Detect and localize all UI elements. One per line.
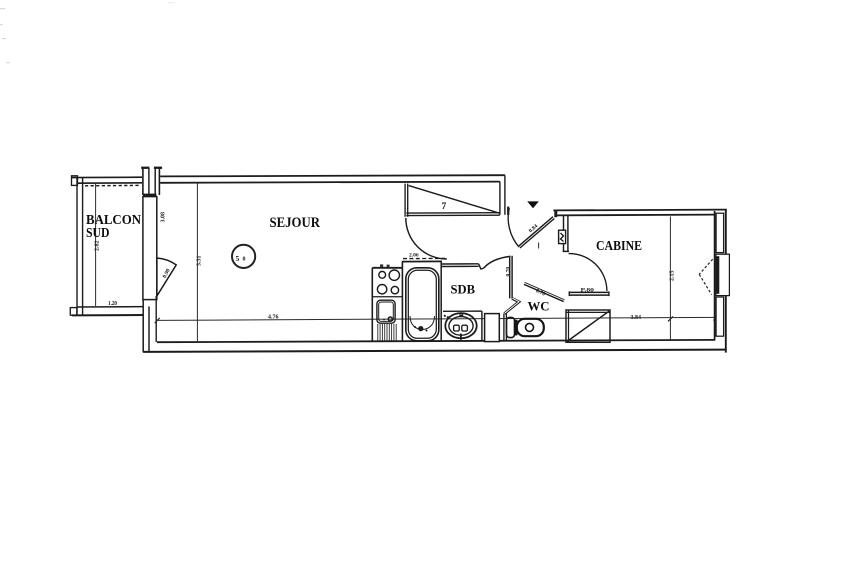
svg-text:5: 5 [236, 254, 240, 263]
svg-text:3.84: 3.84 [631, 315, 642, 321]
svg-text:SDB: SDB [451, 282, 476, 297]
svg-text:7: 7 [442, 202, 447, 212]
svg-text:2.15: 2.15 [670, 271, 676, 282]
svg-text:2.06: 2.06 [409, 252, 419, 258]
svg-text:0.70: 0.70 [506, 267, 512, 277]
svg-text:WC: WC [528, 298, 550, 313]
svg-text:P.80: P.80 [581, 287, 595, 293]
svg-text:2.82: 2.82 [95, 241, 101, 252]
svg-text:1.20: 1.20 [108, 301, 117, 307]
svg-text:SEJOUR: SEJOUR [270, 215, 321, 231]
svg-text:SUD: SUD [86, 225, 110, 240]
svg-text:3.31: 3.31 [197, 256, 203, 267]
svg-text:0: 0 [243, 257, 246, 263]
svg-text:0.70: 0.70 [535, 288, 546, 297]
svg-text:4.76: 4.76 [268, 315, 279, 321]
svg-text:3.08: 3.08 [161, 212, 167, 223]
svg-text:CABINE: CABINE [596, 239, 642, 254]
